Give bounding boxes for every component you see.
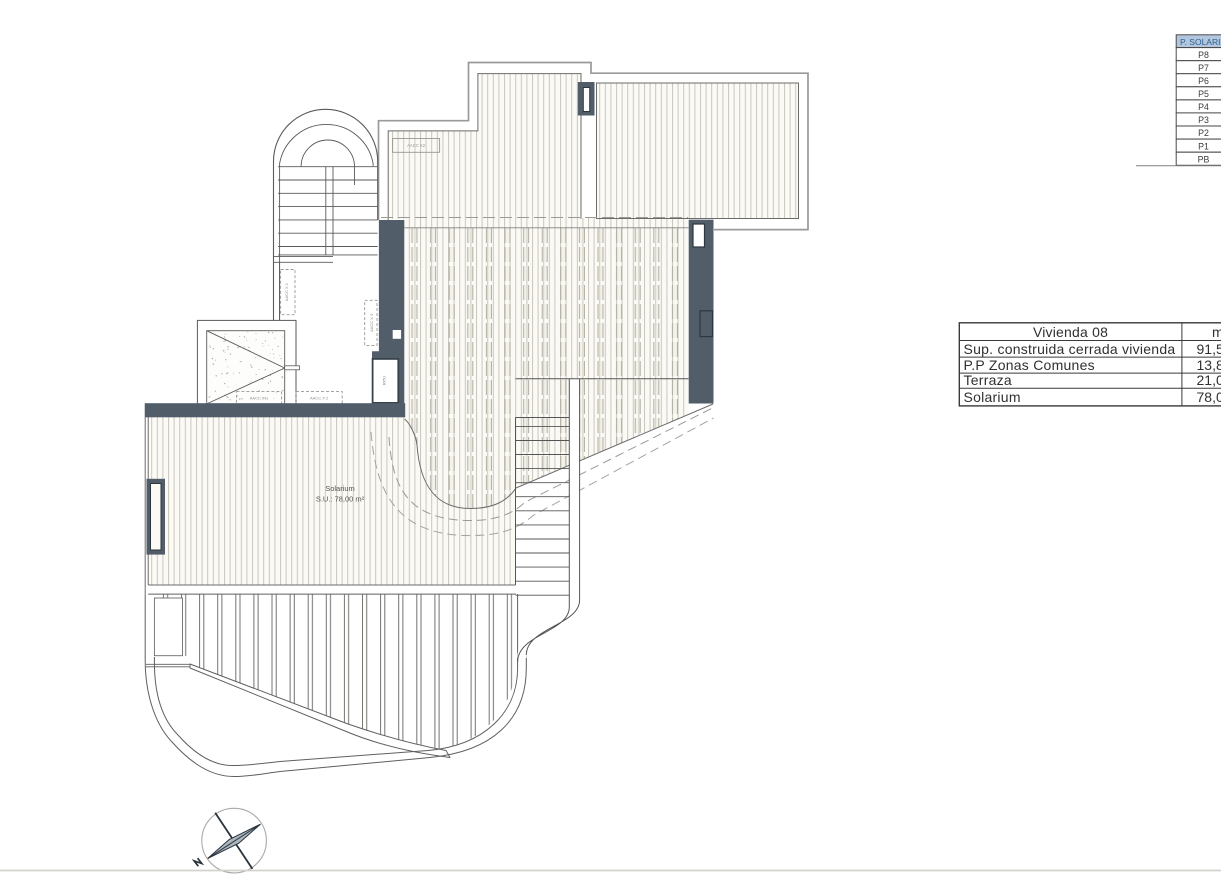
- svg-text:AACC IN1: AACC IN1: [250, 396, 269, 401]
- svg-text:P6: P6: [1198, 76, 1209, 86]
- svg-text:13,80: 13,80: [1197, 357, 1221, 373]
- svg-text:91,55: 91,55: [1197, 341, 1221, 357]
- svg-text:P1: P1: [1198, 141, 1209, 151]
- svg-text:Solarium: Solarium: [964, 389, 1021, 405]
- svg-text:21,00: 21,00: [1197, 372, 1221, 388]
- svg-text:P5: P5: [1198, 89, 1209, 99]
- svg-text:P2: P2: [1198, 128, 1209, 138]
- svg-text:m²: m²: [1212, 324, 1221, 340]
- svg-text:P. SOLARIUM: P. SOLARIUM: [1180, 37, 1221, 47]
- svg-text:P3: P3: [1198, 115, 1209, 125]
- svg-text:AACC X 3: AACC X 3: [369, 313, 374, 332]
- svg-text:S.U.: 78,00 m²: S.U.: 78,00 m²: [316, 495, 365, 504]
- svg-text:RITU: RITU: [382, 376, 387, 385]
- svg-text:Sup. construida cerrada vivien: Sup. construida cerrada vivienda: [964, 341, 1176, 357]
- svg-text:P8: P8: [1198, 50, 1209, 60]
- svg-text:78,00: 78,00: [1197, 389, 1221, 405]
- svg-text:P.P Zonas Comunes: P.P Zonas Comunes: [964, 357, 1095, 373]
- svg-text:P4: P4: [1198, 102, 1209, 112]
- svg-text:PB: PB: [1198, 154, 1210, 164]
- svg-text:AACC X 2: AACC X 2: [310, 396, 329, 401]
- svg-text:P7: P7: [1198, 63, 1209, 73]
- svg-text:Vivienda 08: Vivienda 08: [1033, 324, 1108, 340]
- svg-text:AACC X2: AACC X2: [407, 143, 426, 148]
- svg-text:AACC X 1: AACC X 1: [284, 282, 289, 301]
- svg-text:Terraza: Terraza: [964, 372, 1012, 388]
- svg-text:Solarium: Solarium: [325, 484, 355, 493]
